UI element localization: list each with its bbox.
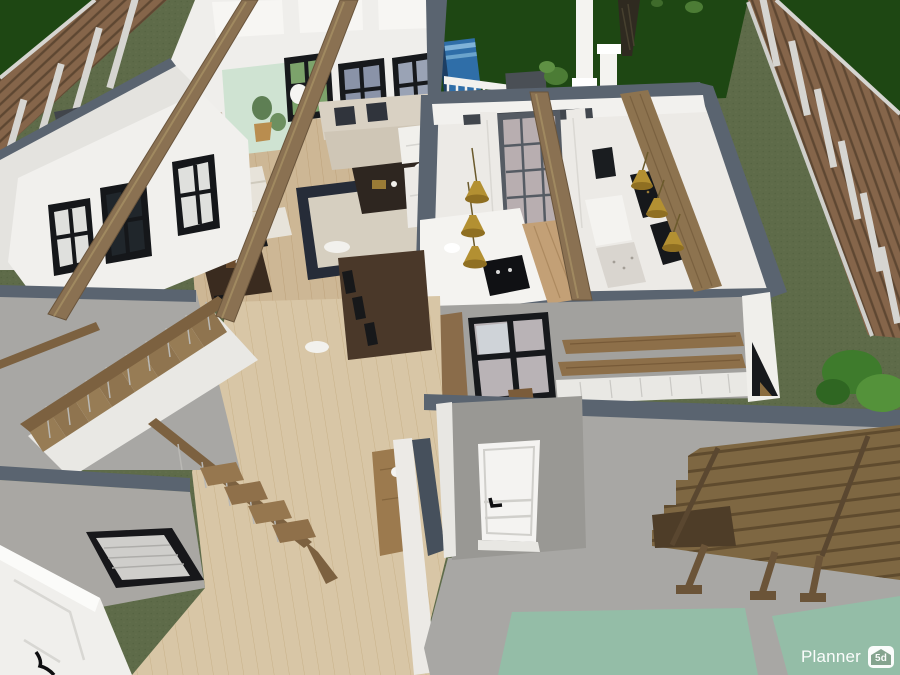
planner5d-watermark: Planner 5d [801,646,894,668]
hall-sideboard [338,250,432,360]
mudroom [428,292,780,404]
entry-wall [436,396,586,560]
planner5d-logo-icon: 5d [868,646,894,668]
house-icon: 5d [871,649,891,665]
front-door [478,440,540,552]
glass-door [468,312,556,404]
watermark-badge-text: 5d [875,653,887,665]
watermark-brand: Planner [801,647,861,667]
floating-shelves [556,332,752,404]
plant [252,96,272,120]
3d-viewport[interactable]: Planner 5d [0,0,900,675]
plant [270,113,286,131]
scene-render [0,0,900,675]
